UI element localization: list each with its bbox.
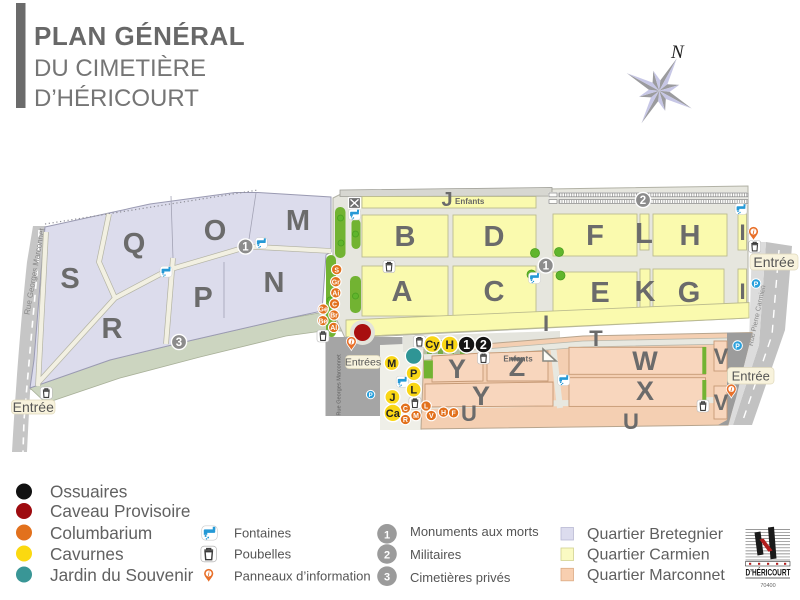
svg-text:Ca: Ca xyxy=(386,408,401,420)
svg-text:Y: Y xyxy=(448,354,466,384)
svg-text:L: L xyxy=(410,385,417,397)
svg-text:PLAN GÉNÉRAL: PLAN GÉNÉRAL xyxy=(34,21,245,51)
svg-text:2: 2 xyxy=(640,195,646,207)
svg-text:J: J xyxy=(441,189,452,211)
svg-text:D’HÉRICOURT: D’HÉRICOURT xyxy=(746,567,791,578)
svg-text:P: P xyxy=(754,281,759,288)
svg-text:Militaires: Militaires xyxy=(410,547,462,562)
svg-text:P: P xyxy=(410,368,417,380)
svg-text:Al: Al xyxy=(330,325,337,332)
svg-text:S: S xyxy=(60,263,79,295)
svg-text:C: C xyxy=(403,406,408,413)
svg-text:Enfants: Enfants xyxy=(455,197,485,206)
svg-text:Ai: Ai xyxy=(332,291,339,298)
svg-text:2: 2 xyxy=(480,338,487,352)
svg-text:W: W xyxy=(632,346,658,376)
svg-text:B: B xyxy=(395,221,416,253)
svg-text:M: M xyxy=(387,358,396,370)
svg-text:Br: Br xyxy=(330,313,338,320)
svg-text:C: C xyxy=(332,302,337,309)
svg-text:M: M xyxy=(413,413,419,420)
svg-text:Fontaines: Fontaines xyxy=(234,526,292,541)
svg-text:I: I xyxy=(739,279,745,304)
svg-text:Cimetières privés: Cimetières privés xyxy=(410,570,511,585)
svg-text:Quartier Carmien: Quartier Carmien xyxy=(587,547,710,564)
svg-text:DU CIMETIÈRE: DU CIMETIÈRE xyxy=(34,55,206,82)
svg-text:Gr: Gr xyxy=(332,279,340,286)
svg-text:3: 3 xyxy=(384,572,390,584)
svg-text:V: V xyxy=(714,344,729,369)
svg-text:1: 1 xyxy=(384,529,390,541)
svg-text:Columbarium: Columbarium xyxy=(50,523,152,543)
svg-text:R: R xyxy=(102,313,123,345)
svg-text:Caveau Provisoire: Caveau Provisoire xyxy=(50,501,190,521)
svg-text:X: X xyxy=(636,376,654,406)
svg-text:J: J xyxy=(389,392,395,404)
svg-text:A: A xyxy=(392,276,413,308)
svg-text:D’HÉRICOURT: D’HÉRICOURT xyxy=(34,85,199,112)
svg-text:C: C xyxy=(484,276,505,308)
svg-text:M: M xyxy=(286,205,310,237)
svg-text:3: 3 xyxy=(176,337,182,349)
svg-text:1: 1 xyxy=(543,261,550,273)
svg-text:Entrée: Entrée xyxy=(753,254,794,270)
svg-text:Poubelles: Poubelles xyxy=(234,547,292,562)
svg-text:H: H xyxy=(445,338,454,352)
svg-text:L: L xyxy=(635,218,653,250)
svg-text:Jardin du Souvenir: Jardin du Souvenir xyxy=(50,565,194,585)
svg-text:i: i xyxy=(350,339,352,346)
svg-text:D: D xyxy=(484,221,505,253)
svg-text:Quartier Marconnet: Quartier Marconnet xyxy=(587,567,725,584)
svg-text:Rue Georges Marconnet: Rue Georges Marconnet xyxy=(337,354,343,416)
svg-text:N: N xyxy=(264,267,285,299)
svg-text:i: i xyxy=(730,386,732,393)
svg-text:V: V xyxy=(714,390,729,415)
svg-text:70400: 70400 xyxy=(760,583,775,589)
svg-text:Entrée: Entrée xyxy=(732,368,770,383)
svg-text:E: E xyxy=(590,277,609,309)
svg-text:Cavurnes: Cavurnes xyxy=(50,544,124,564)
svg-text:i: i xyxy=(753,229,755,236)
svg-text:Ge: Ge xyxy=(319,307,328,314)
svg-text:Entrée: Entrée xyxy=(13,399,54,415)
svg-text:T: T xyxy=(589,326,603,351)
svg-text:L: L xyxy=(424,404,429,411)
svg-text:P: P xyxy=(369,392,373,399)
svg-text:F: F xyxy=(451,411,456,418)
svg-text:U: U xyxy=(623,409,639,434)
svg-text:V: V xyxy=(429,413,434,420)
svg-text:H: H xyxy=(441,410,446,417)
svg-text:Panneaux d’information: Panneaux d’information xyxy=(234,569,371,584)
svg-text:G: G xyxy=(678,277,701,309)
svg-text:O: O xyxy=(204,215,227,247)
svg-text:Be: Be xyxy=(318,318,327,325)
svg-text:U: U xyxy=(461,401,477,426)
svg-text:Entrées: Entrées xyxy=(345,357,381,369)
svg-text:H: H xyxy=(680,220,701,252)
svg-text:Q: Q xyxy=(123,228,146,260)
svg-text:S: S xyxy=(334,267,339,274)
svg-text:K: K xyxy=(635,276,656,308)
svg-text:N: N xyxy=(670,42,685,63)
svg-text:Monuments aux morts: Monuments aux morts xyxy=(410,524,539,539)
svg-text:P: P xyxy=(735,343,740,350)
svg-text:2: 2 xyxy=(384,550,390,562)
svg-text:F: F xyxy=(586,220,604,252)
svg-text:1: 1 xyxy=(242,242,249,254)
svg-text:I: I xyxy=(739,220,745,245)
svg-text:Ossuaires: Ossuaires xyxy=(50,482,127,502)
svg-text:P: P xyxy=(193,282,212,314)
svg-text:Quartier Bretegnier: Quartier Bretegnier xyxy=(587,526,724,543)
svg-text:Enfants: Enfants xyxy=(503,355,533,364)
svg-text:1: 1 xyxy=(463,338,470,352)
svg-text:i: i xyxy=(208,571,210,578)
svg-text:R: R xyxy=(403,417,408,424)
svg-text:Cy: Cy xyxy=(425,339,440,351)
